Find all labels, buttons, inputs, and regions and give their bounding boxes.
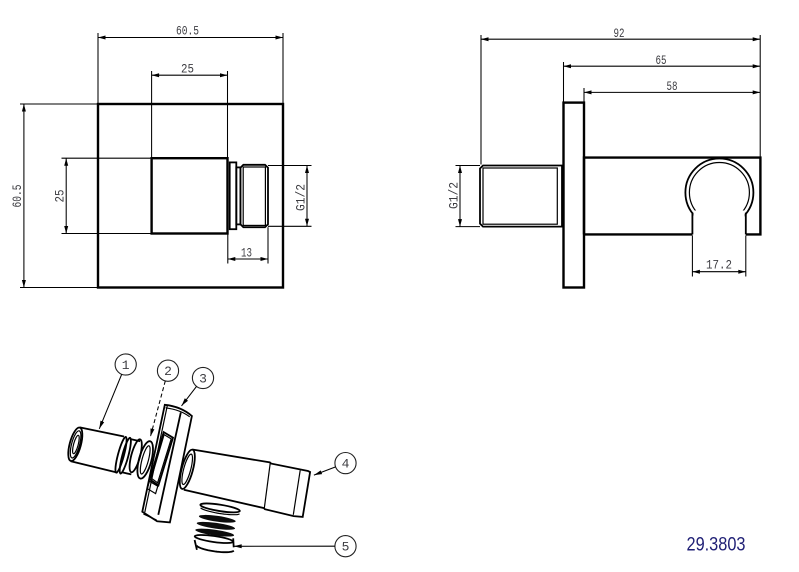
svg-text:1: 1 <box>122 358 130 373</box>
svg-text:4: 4 <box>342 456 350 471</box>
svg-text:2: 2 <box>164 364 172 379</box>
svg-text:3: 3 <box>199 371 207 386</box>
svg-text:58: 58 <box>667 79 678 94</box>
svg-text:25: 25 <box>181 62 194 77</box>
svg-text:13: 13 <box>241 245 252 260</box>
svg-text:G1/2: G1/2 <box>446 182 461 209</box>
svg-text:65: 65 <box>656 53 667 68</box>
svg-text:92: 92 <box>614 26 625 41</box>
svg-text:17.2: 17.2 <box>706 258 732 273</box>
svg-text:60.5: 60.5 <box>176 24 199 39</box>
svg-text:25: 25 <box>53 190 68 203</box>
svg-text:G1/2: G1/2 <box>293 184 308 211</box>
svg-text:29.3803: 29.3803 <box>687 535 746 556</box>
svg-text:5: 5 <box>342 540 350 555</box>
svg-text:60.5: 60.5 <box>10 185 25 208</box>
